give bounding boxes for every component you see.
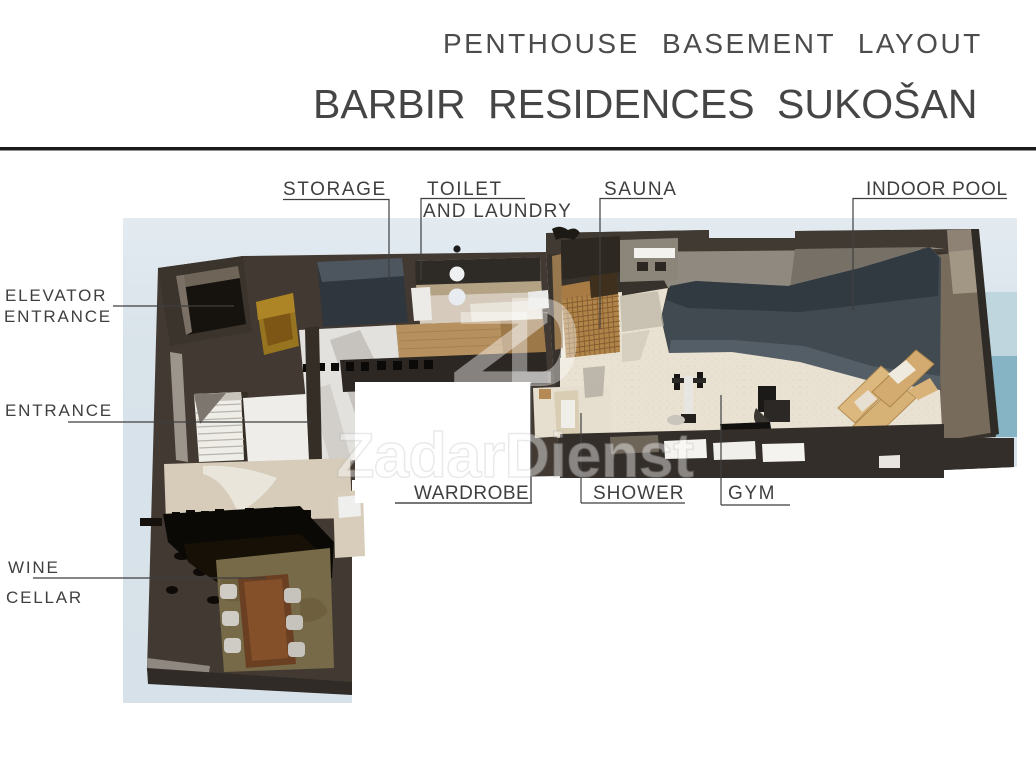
svg-text:ENTRANCE: ENTRANCE — [4, 307, 112, 326]
svg-text:BARBIR RESIDENCES SUKOŠAN: BARBIR RESIDENCES SUKOŠAN — [313, 81, 978, 127]
svg-text:GYM: GYM — [728, 483, 776, 504]
svg-text:CELLAR: CELLAR — [6, 588, 83, 607]
svg-text:PENTHOUSE BASEMENT LAYOUT: PENTHOUSE BASEMENT LAYOUT — [443, 28, 983, 59]
svg-text:STORAGE: STORAGE — [283, 179, 387, 200]
svg-text:AND LAUNDRY: AND LAUNDRY — [423, 201, 572, 222]
svg-text:ENTRANCE: ENTRANCE — [5, 401, 113, 420]
svg-text:INDOOR POOL: INDOOR POOL — [866, 179, 1008, 200]
svg-text:TOILET: TOILET — [427, 179, 503, 200]
svg-text:SAUNA: SAUNA — [604, 179, 677, 200]
svg-text:ZadarDienst: ZadarDienst — [336, 421, 694, 491]
svg-text:ELEVATOR: ELEVATOR — [5, 286, 107, 305]
svg-text:D: D — [505, 271, 581, 414]
svg-text:WINE: WINE — [8, 558, 60, 577]
